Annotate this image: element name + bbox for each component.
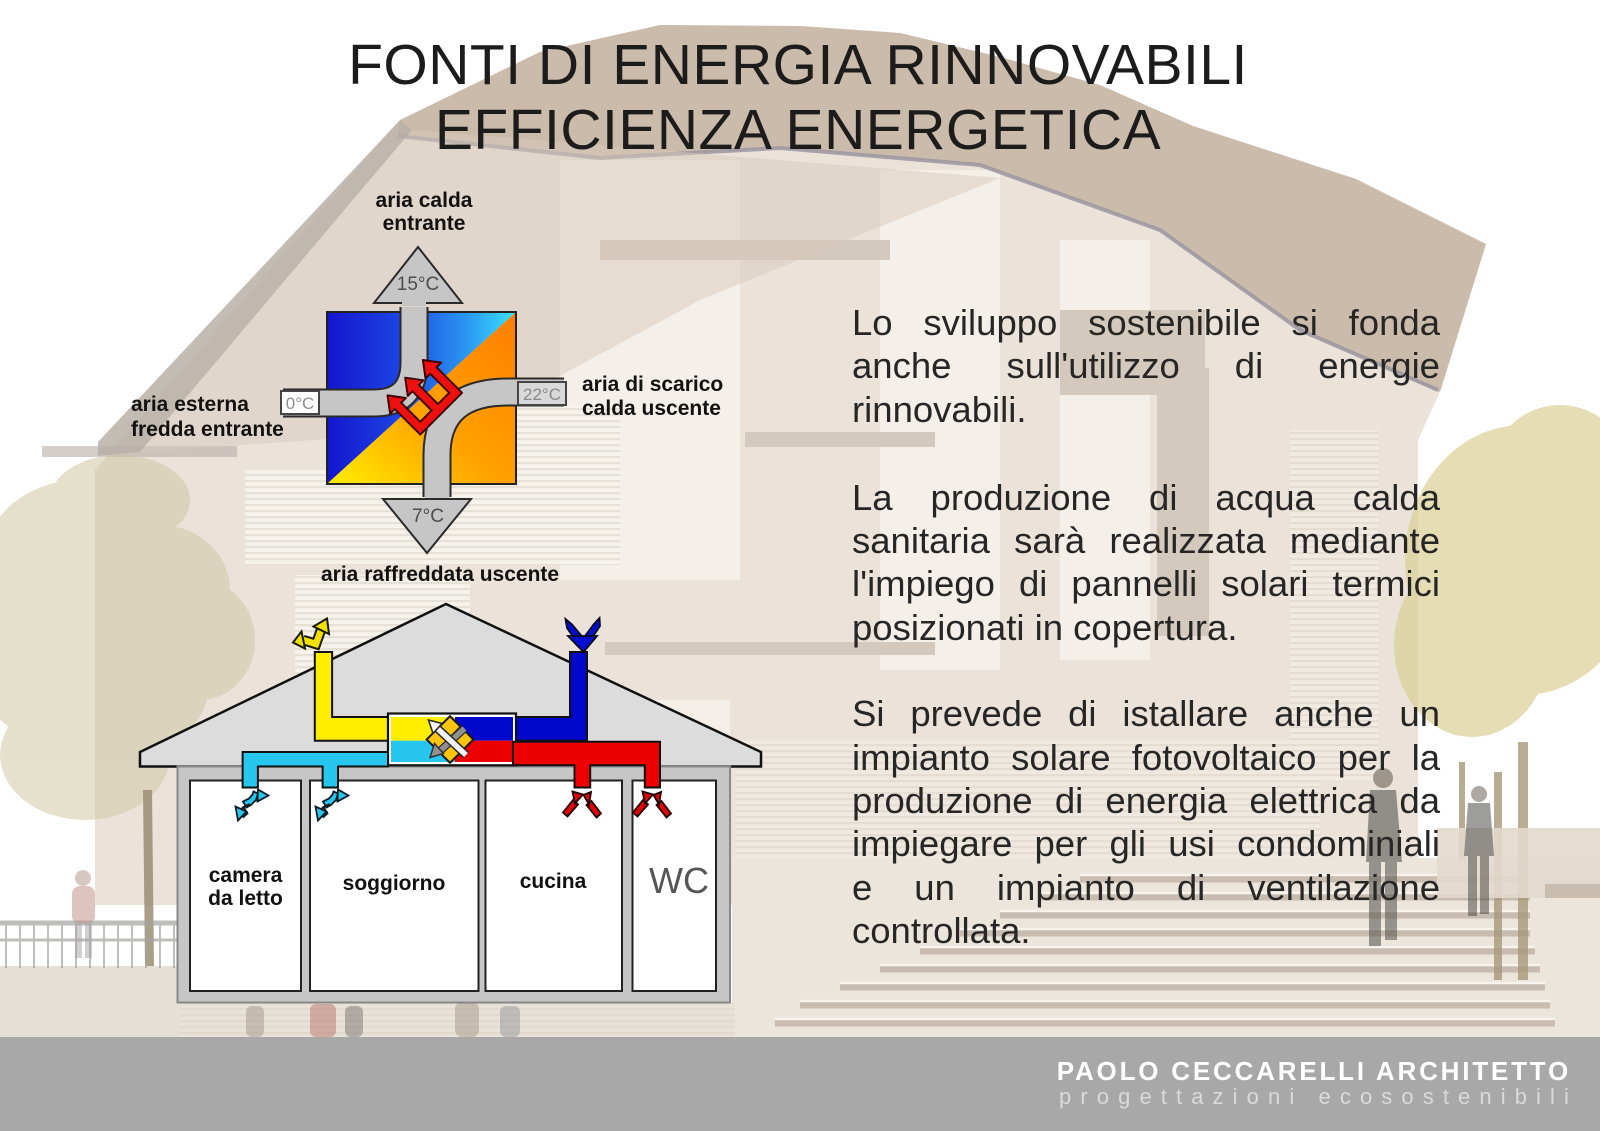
svg-text:22°C: 22°C [523, 385, 561, 404]
svg-text:15°C: 15°C [397, 274, 439, 295]
svg-text:7°C: 7°C [412, 506, 444, 527]
